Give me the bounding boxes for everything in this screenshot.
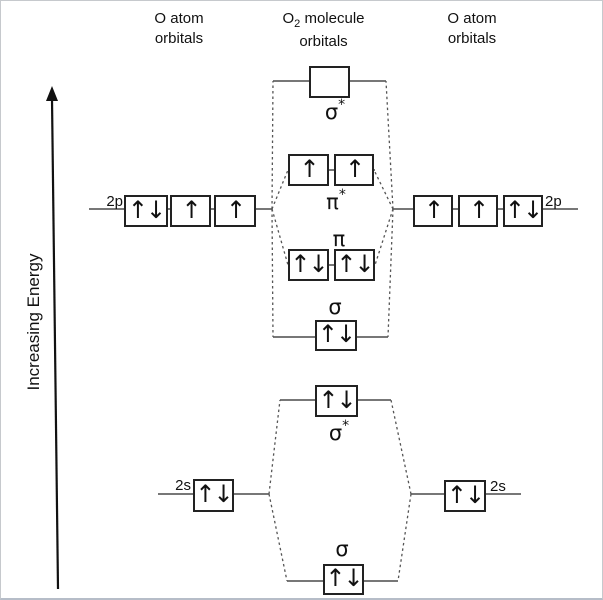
header-left-line1: O atom xyxy=(133,9,225,29)
connector-lines xyxy=(1,1,603,600)
pi-star-2p-box-2: ↑ xyxy=(334,154,374,186)
pi-2p-label: π xyxy=(317,227,361,251)
left-2s-label: 2s xyxy=(167,477,191,494)
electron-arrows: ↑ xyxy=(299,157,317,181)
sigma-2s-box: ↑↓ xyxy=(323,564,364,595)
electron-arrows: ↑ xyxy=(469,198,487,222)
sigma-star-2s-label: σ* xyxy=(317,420,361,445)
sigma-star-2s-box: ↑↓ xyxy=(315,385,358,417)
right-2p-label: 2p xyxy=(545,193,562,210)
electron-arrows: ↑↓ xyxy=(195,482,231,506)
electron-arrows: ↑ xyxy=(181,198,199,222)
electron-arrows: ↑↓ xyxy=(318,388,354,412)
electron-arrows: ↑ xyxy=(226,198,244,222)
electron-arrows: ↑ xyxy=(424,198,442,222)
pi-2p-box-1: ↑↓ xyxy=(288,249,329,281)
electron-arrows: ↑ xyxy=(345,157,363,181)
header-center-molecule: O2 molecule orbitals xyxy=(261,9,386,52)
header-center-line1: O2 molecule xyxy=(261,9,386,32)
pi-star-2p-box-1: ↑ xyxy=(288,154,329,186)
header-left-atom: O atom orbitals xyxy=(133,9,225,50)
left-2p-label: 2p xyxy=(99,193,123,210)
left-2p-box-3: ↑ xyxy=(214,195,256,227)
header-right-line1: O atom xyxy=(426,9,518,29)
sigma-2s-label: σ xyxy=(320,537,364,561)
left-2p-box-2: ↑ xyxy=(170,195,211,227)
mo-diagram: O atom orbitals O2 molecule orbitals O a… xyxy=(0,0,603,600)
right-2p-box-1: ↑ xyxy=(413,195,453,227)
sigma-2p-label: σ xyxy=(313,295,357,319)
right-2s-box: ↑↓ xyxy=(444,480,486,512)
electron-arrows: ↑↓ xyxy=(290,252,326,276)
electron-arrows: ↑↓ xyxy=(505,198,541,222)
pi-star-2p-label: π* xyxy=(314,189,358,214)
pi-2p-box-2: ↑↓ xyxy=(334,249,375,281)
electron-arrows: ↑↓ xyxy=(336,252,372,276)
header-right-atom: O atom orbitals xyxy=(426,9,518,50)
right-2s-label: 2s xyxy=(490,478,506,495)
electron-arrows: ↑↓ xyxy=(128,198,164,222)
header-left-line2: orbitals xyxy=(133,29,225,49)
header-center-line2: orbitals xyxy=(261,32,386,52)
electron-arrows: ↑↓ xyxy=(447,483,483,507)
energy-axis-arrow xyxy=(46,86,58,589)
sigma-star-2p-box xyxy=(309,66,350,98)
electron-arrows: ↑↓ xyxy=(318,322,354,346)
right-2p-box-2: ↑ xyxy=(458,195,498,227)
header-right-line2: orbitals xyxy=(426,29,518,49)
sigma-2p-box: ↑↓ xyxy=(315,320,357,351)
left-2p-box-1: ↑↓ xyxy=(124,195,168,227)
right-2p-box-3: ↑↓ xyxy=(503,195,543,227)
electron-arrows: ↑↓ xyxy=(325,566,361,590)
left-2s-box: ↑↓ xyxy=(193,479,234,512)
increasing-energy-label: Increasing Energy xyxy=(24,237,44,407)
sigma-star-2p-label: σ* xyxy=(313,99,357,124)
